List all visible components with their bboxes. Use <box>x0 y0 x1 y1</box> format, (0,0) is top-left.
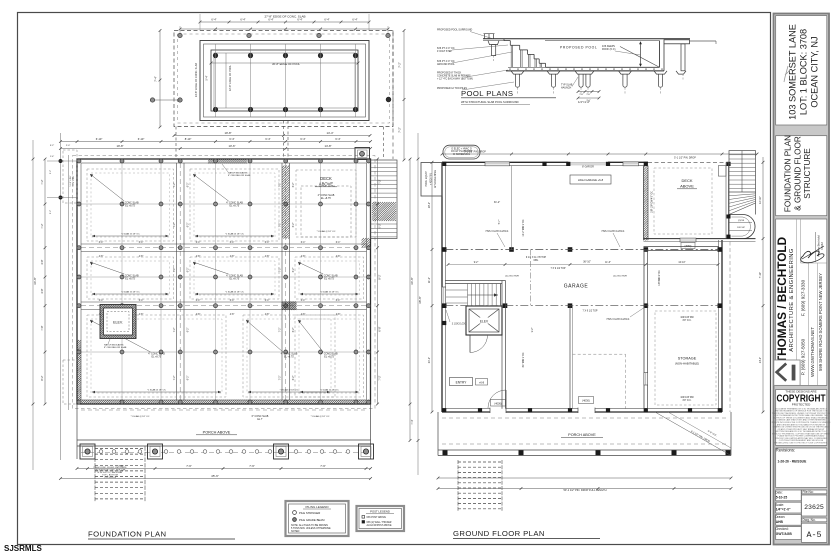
svg-text:23625: 23625 <box>804 504 824 511</box>
svg-text:6'-2": 6'-2" <box>188 268 190 273</box>
svg-text:6'-2": 6'-2" <box>378 223 382 228</box>
svg-text:DBL: DBL <box>534 259 539 262</box>
svg-text:6'-4": 6'-4" <box>324 18 329 22</box>
svg-text:5'-7": 5'-7" <box>499 220 501 225</box>
svg-text:7'-2": 7'-2" <box>280 183 282 188</box>
svg-text:6'-4": 6'-4" <box>99 300 104 302</box>
svg-text:6'-4": 6'-4" <box>301 300 306 302</box>
svg-text:1/4"=1'-0": 1/4"=1'-0" <box>776 508 791 512</box>
svg-text:9'-2": 9'-2" <box>532 328 534 333</box>
svg-text:*1 SLAB @ 18" OC: *1 SLAB @ 18" OC <box>121 233 140 236</box>
svg-text:1-26-26 - REISSUE: 1-26-26 - REISSUE <box>778 460 808 464</box>
svg-text:34'-8": 34'-8" <box>33 277 37 285</box>
svg-text:6X6 POST ABOVE: 6X6 POST ABOVE <box>367 516 387 519</box>
svg-text:6'-4": 6'-4" <box>240 18 245 22</box>
svg-text:EL.7': EL.7' <box>257 418 263 421</box>
svg-text:9'-2": 9'-2" <box>474 262 479 264</box>
svg-text:6X6 (2) WALL THICKER: 6X6 (2) WALL THICKER <box>367 521 392 524</box>
svg-text:1'-0": 1'-0" <box>586 94 591 96</box>
svg-text:6'-10": 6'-10" <box>96 137 103 141</box>
svg-text:7'-6": 7'-6" <box>320 464 326 468</box>
svg-text:7'-2": 7'-2" <box>174 328 176 333</box>
svg-text:EL +8.75': EL +8.75' <box>284 356 295 359</box>
svg-text:A-5: A-5 <box>806 530 821 540</box>
svg-text:PROPOSED POOL SURROUND: PROPOSED POOL SURROUND <box>437 29 473 32</box>
svg-text:STORAGE: STORAGE <box>678 357 697 361</box>
svg-text:EL +8.75': EL +8.75' <box>151 356 162 359</box>
svg-text:7'-2": 7'-2" <box>174 223 176 228</box>
svg-text:AHB: AHB <box>776 520 784 524</box>
svg-text:8'-10": 8'-10" <box>185 137 192 141</box>
svg-text:7'-2": 7'-2" <box>398 62 402 68</box>
svg-text:POOL PLANS: POOL PLANS <box>461 89 513 98</box>
svg-text:4'-8": 4'-8" <box>230 314 235 316</box>
svg-text:38'-8": 38'-8" <box>418 296 422 304</box>
svg-text:21'-2": 21'-2" <box>428 357 431 363</box>
svg-text:7'-10": 7'-10" <box>759 272 762 278</box>
svg-text:14'-8": 14'-8" <box>324 144 331 148</box>
svg-text:7'-4": 7'-4" <box>154 76 158 82</box>
svg-text:6'-4": 6'-4" <box>196 300 201 302</box>
svg-text:*1 SLAB @ 18" OC: *1 SLAB @ 18" OC <box>225 291 244 294</box>
svg-text:7'-2": 7'-2" <box>378 179 382 184</box>
svg-text:6'-2": 6'-2" <box>293 223 295 228</box>
svg-text:6'-2": 6'-2" <box>188 183 190 188</box>
svg-text:HSS 3 1/2X3 1/2X1/4: HSS 3 1/2X3 1/2X1/4 <box>486 230 509 233</box>
svg-text:6'-10": 6'-10" <box>138 137 145 141</box>
svg-text:7'-2": 7'-2" <box>174 376 176 381</box>
svg-text:PORCH ABOVE: PORCH ABOVE <box>568 433 596 437</box>
svg-text:6'-4": 6'-4" <box>211 18 216 22</box>
svg-text:10R 10P DW: 10R 10P DW <box>680 317 694 319</box>
svg-text:17642: 17642 <box>820 242 824 250</box>
svg-text:12'-2" MIN 9' OC: 12'-2" MIN 9' OC <box>523 219 525 236</box>
svg-text:6'-4": 6'-4" <box>265 300 270 302</box>
svg-text:*1 SLAB @ 18" OC: *1 SLAB @ 18" OC <box>225 233 244 236</box>
svg-text:31'-2": 31'-2" <box>494 201 500 204</box>
svg-text:*1 SLAB @ 18" OC: *1 SLAB @ 18" OC <box>311 415 330 418</box>
svg-text:45'-6": 45'-6" <box>211 474 219 478</box>
svg-text:6'-4": 6'-4" <box>297 18 302 22</box>
svg-text:ABOVE: ABOVE <box>680 184 694 189</box>
svg-text:DECK: DECK <box>320 176 332 181</box>
svg-text:POOL EQUIP: POOL EQUIP <box>425 171 428 187</box>
svg-text:EL +8.75': EL +8.75' <box>324 278 335 281</box>
svg-text:7'-2": 7'-2" <box>174 268 176 273</box>
svg-text:7'-6": 7'-6" <box>118 464 124 468</box>
svg-text:7'-2": 7'-2" <box>398 127 402 133</box>
svg-text:6'-4": 6'-4" <box>99 242 104 244</box>
svg-text:(NON-HABITABLE): (NON-HABITABLE) <box>675 362 699 366</box>
svg-text:6'-2": 6'-2" <box>293 183 295 188</box>
svg-text:EL +8.75': EL +8.75' <box>125 205 136 208</box>
svg-text:EL +8.75': EL +8.75' <box>229 278 240 281</box>
svg-text:8' GAR DR: 8' GAR DR <box>582 166 594 169</box>
svg-text:6'-4": 6'-4" <box>301 242 306 244</box>
svg-text:18'-2": 18'-2" <box>428 202 431 208</box>
svg-text:NOTED: NOTED <box>291 530 300 533</box>
svg-text:*1 SLAB @ 18" OC: *1 SLAB @ 18" OC <box>320 389 339 392</box>
svg-text:11'-6": 11'-6" <box>605 262 611 264</box>
svg-text:Drawn:: Drawn: <box>775 515 785 519</box>
svg-text:6'-2": 6'-2" <box>188 328 190 333</box>
svg-text:F. (609) 927-3330: F. (609) 927-3330 <box>801 279 806 316</box>
svg-text:1'-4": 1'-4" <box>50 156 55 158</box>
svg-text:599 SHORE ROAD SOMERS POINT: 599 SHORE ROAD SOMERS POINT NEW JERSEY <box>818 273 823 371</box>
svg-text:6'-4": 6'-4" <box>265 242 270 244</box>
svg-text:7 X 9 1/2 TOP: 7 X 9 1/2 TOP <box>582 310 597 313</box>
svg-text:1'-6": 1'-6" <box>579 94 584 96</box>
svg-text:Scale:: Scale: <box>775 503 784 507</box>
svg-text:*1 SLAB @ 18" OC: *1 SLAB @ 18" OC <box>131 415 150 418</box>
svg-text:6'-4": 6'-4" <box>352 18 357 22</box>
svg-text:PILE STRINGER: PILE STRINGER <box>299 511 320 515</box>
svg-text:*1 SLAB @ 18" OC: *1 SLAB @ 18" OC <box>317 230 336 233</box>
svg-text:6'-2": 6'-2" <box>293 268 295 273</box>
svg-text:Checked:: Checked: <box>775 527 789 531</box>
svg-text:PROPOSED POOL: PROPOSED POOL <box>560 46 597 50</box>
svg-text:AROUND POOL: AROUND POOL <box>437 63 455 66</box>
svg-text:6'-4": 6'-4" <box>336 242 341 244</box>
svg-text:6'-4": 6'-4" <box>139 242 144 244</box>
svg-text:& GROUND FLOOR: & GROUND FLOOR <box>794 136 803 211</box>
svg-text:6'-4": 6'-4" <box>336 300 341 302</box>
svg-text:8" CMU BELOW SLAB: 8" CMU BELOW SLAB <box>104 346 127 349</box>
svg-text:*1 SLAB @ 18" OC: *1 SLAB @ 18" OC <box>121 291 140 294</box>
svg-text:36'-8" EDGE OF POOL: 36'-8" EDGE OF POOL <box>272 62 300 66</box>
svg-text:5'-4": 5'-4" <box>206 75 209 80</box>
svg-text:3 1/2" 4 PLY: 3 1/2" 4 PLY <box>73 175 75 187</box>
svg-text:LOT: 1 BLOCK: 3708: LOT: 1 BLOCK: 3708 <box>798 29 808 115</box>
svg-text:PORCH ABOVE: PORCH ABOVE <box>203 431 231 435</box>
svg-text:4'9" O.C.: 4'9" O.C. <box>682 400 692 402</box>
svg-text:6'-4": 6'-4" <box>335 137 340 141</box>
svg-text:DECK: DECK <box>681 178 692 183</box>
svg-text:6'-2": 6'-2" <box>293 376 295 381</box>
svg-text:6'-4": 6'-4" <box>265 137 270 141</box>
svg-text:THOMAS / BECHTOLD: THOMAS / BECHTOLD <box>775 236 789 363</box>
svg-text:3'-2": 3'-2" <box>50 145 55 147</box>
svg-text:6'-4": 6'-4" <box>139 300 144 302</box>
svg-text:14'-4": 14'-4" <box>326 131 333 135</box>
svg-text:ELEV.: ELEV. <box>113 321 123 325</box>
svg-text:7'-2": 7'-2" <box>280 223 282 228</box>
svg-text:PILE GRADE BEAM: PILE GRADE BEAM <box>299 518 325 522</box>
svg-text:Dwg. No.: Dwg. No. <box>803 518 816 522</box>
svg-text:6'-2": 6'-2" <box>188 376 190 381</box>
svg-text:3'-2": 3'-2" <box>50 210 52 215</box>
svg-text:7'-6": 7'-6" <box>186 464 192 468</box>
svg-text:*1 SLAB @ 18" OC: *1 SLAB @ 18" OC <box>280 389 299 392</box>
svg-text:STRUCTURE: STRUCTURE <box>803 148 812 199</box>
svg-text:HIGH GARAGE +6-8: HIGH GARAGE +6-8 <box>578 178 604 182</box>
svg-text:10'-10": 10'-10" <box>678 262 685 264</box>
svg-text:OCEAN CITY, NJ: OCEAN CITY, NJ <box>809 36 819 107</box>
svg-text:(2) 2X10 HDR: (2) 2X10 HDR <box>505 276 519 278</box>
svg-text:14'-2": 14'-2" <box>759 357 762 363</box>
svg-text:PROTECTED: PROTECTED <box>792 402 811 406</box>
svg-text:7'-2": 7'-2" <box>378 375 382 380</box>
svg-text:+6-8: +6-8 <box>479 380 485 384</box>
svg-text:GROUND FLOOR PLAN: GROUND FLOOR PLAN <box>453 529 545 538</box>
svg-text:14'-8" EDGE OF CONC. SLAB: 14'-8" EDGE OF CONC. SLAB <box>195 63 198 97</box>
svg-text:4'-8": 4'-8" <box>40 288 44 293</box>
svg-text:HSS 3 1/2X3 1/2X1/4: HSS 3 1/2X3 1/2X1/4 <box>602 230 625 233</box>
svg-text:6'-4": 6'-4" <box>196 242 201 244</box>
svg-text:19'-8": 19'-8" <box>224 131 231 135</box>
svg-text:7'-8": 7'-8" <box>40 325 44 330</box>
svg-text:7'-2": 7'-2" <box>40 179 44 184</box>
svg-text:11'-2": 11'-2" <box>428 277 431 283</box>
svg-text:10R 10P DW: 10R 10P DW <box>680 397 694 399</box>
svg-text:W SCREENING: W SCREENING <box>434 170 437 188</box>
svg-text:6'-4": 6'-4" <box>230 300 235 302</box>
svg-text:6'-4": 6'-4" <box>300 137 305 141</box>
svg-text:PILING LEGEND: PILING LEGEND <box>305 505 329 509</box>
svg-text:(4036): (4036) <box>494 402 501 405</box>
svg-text:HAUNCH: HAUNCH <box>561 87 572 90</box>
svg-text:(2) 2X10 HDR: (2) 2X10 HDR <box>613 276 627 278</box>
svg-text:(4030): (4030) <box>582 399 590 403</box>
svg-text:+ 12" 4"C EACH WAY (BOTTOM): + 12" 4"C EACH WAY (BOTTOM) <box>437 78 473 81</box>
svg-text:19'-8": 19'-8" <box>116 144 123 148</box>
svg-text:ENTRY: ENTRY <box>456 380 468 384</box>
svg-text:P. (609) 927-5050: P. (609) 927-5050 <box>801 338 806 375</box>
svg-text:2'-0": 2'-0" <box>66 145 71 147</box>
svg-text:8'-2": 8'-2" <box>40 375 44 380</box>
svg-text:ALIGN W/POST ABOVE: ALIGN W/POST ABOVE <box>367 524 392 527</box>
svg-text:10R 10P: 10R 10P <box>737 227 746 229</box>
svg-text:6'-4": 6'-4" <box>229 137 234 141</box>
svg-text:7 X 9 1/2 TOP: 7 X 9 1/2 TOP <box>550 267 565 270</box>
svg-text:10R 10P DW 4'9" OC: 10R 10P DW 4'9" OC <box>652 191 654 213</box>
svg-text:6'-2": 6'-2" <box>188 223 190 228</box>
svg-text:GARAGE: GARAGE <box>564 284 589 290</box>
svg-text:ABOVE: ABOVE <box>319 182 334 187</box>
svg-text:5-10-25: 5-10-25 <box>776 495 788 499</box>
svg-text:12'-8" EDGE OF POOL: 12'-8" EDGE OF POOL <box>229 64 232 91</box>
svg-text:4'-8": 4'-8" <box>40 259 44 264</box>
svg-text:4'9" O.C.: 4'9" O.C. <box>682 320 692 322</box>
svg-text:14'8 MIN 9' OC: 14'8 MIN 9' OC <box>659 270 661 286</box>
svg-text:8'-2": 8'-2" <box>378 274 382 279</box>
svg-text:12'-10": 12'-10" <box>759 196 762 204</box>
svg-text:EL +8.75': EL +8.75' <box>229 205 240 208</box>
svg-text:7'-2": 7'-2" <box>40 223 44 228</box>
svg-text:POST LEGEND: POST LEGEND <box>370 510 390 514</box>
svg-text:6'-4": 6'-4" <box>268 18 273 22</box>
svg-text:FOUNDATION PLAN: FOUNDATION PLAN <box>88 530 166 539</box>
svg-text:ARCHITECTURE & ENGINEERING: ARCHITECTURE & ENGINEERING <box>789 248 795 352</box>
svg-text:Date:: Date: <box>775 491 783 495</box>
svg-text:34'-8": 34'-8" <box>410 277 414 285</box>
svg-text:10'-6": 10'-6" <box>228 144 235 148</box>
svg-text:7'-2": 7'-2" <box>174 183 176 188</box>
svg-text:PROSECUTED. USE TO PROTECT YO: PROSECUTED. USE TO PROTECT YOUR COPYRIGH… <box>774 443 828 445</box>
svg-text:2'-2": 2'-2" <box>50 170 52 175</box>
svg-text:EL +8.75': EL +8.75' <box>321 197 332 200</box>
svg-text:7'-2": 7'-2" <box>280 268 282 273</box>
svg-text:ELEV: ELEV <box>480 319 489 323</box>
svg-text:8" CMU BELOW SLAB: 8" CMU BELOW SLAB <box>228 174 251 177</box>
svg-text:Revisions:: Revisions: <box>776 448 795 453</box>
svg-text:EL +8.75': EL +8.75' <box>125 278 136 281</box>
svg-text:*1 SLAB @ 18" OC: *1 SLAB @ 18" OC <box>147 389 166 392</box>
svg-text:GWT/AGB: GWT/AGB <box>776 532 793 536</box>
svg-text:1/4"=1'-0": 1/4"=1'-0" <box>578 100 590 104</box>
svg-text:WITH STRUCTURAL SLAB POOL SURR: WITH STRUCTURAL SLAB POOL SURROUND <box>461 100 519 104</box>
svg-text:6'-4": 6'-4" <box>230 242 235 244</box>
svg-text:SJSRMLS: SJSRMLS <box>4 544 42 553</box>
svg-text:HSS 3 1/2X3 1/2X1/4: HSS 3 1/2X3 1/2X1/4 <box>607 318 630 321</box>
svg-text:WWW.GWTHOMAS.NET: WWW.GWTHOMAS.NET <box>810 327 815 377</box>
svg-text:*1 SLAB @ 18" OC: *1 SLAB @ 18" OC <box>320 291 339 294</box>
svg-text:5 1/2" 4 PLY: 5 1/2" 4 PLY <box>70 175 72 187</box>
svg-text:5'-1 1/2" PIN. DROP: 5'-1 1/2" PIN. DROP <box>674 157 696 160</box>
svg-text:7'-4": 7'-4" <box>410 419 414 424</box>
svg-text:6'-8": 6'-8" <box>378 326 382 331</box>
svg-text:6'-2": 6'-2" <box>293 328 295 333</box>
svg-text:7'-2": 7'-2" <box>280 328 282 333</box>
svg-text:EL +8.75': EL +8.75' <box>324 356 335 359</box>
svg-text:4' DIGT STEP: 4' DIGT STEP <box>437 50 452 53</box>
svg-text:9'-1 1/2" PIN. DROP: 9'-1 1/2" PIN. DROP <box>464 151 486 154</box>
svg-text:103 SOMERSET LANE: 103 SOMERSET LANE <box>787 24 797 120</box>
svg-text:File No:: File No: <box>803 490 814 494</box>
svg-text:7'-6": 7'-6" <box>249 464 255 468</box>
svg-text:FOUNDATION PLAN: FOUNDATION PLAN <box>784 135 793 212</box>
svg-text:36'-10": 36'-10" <box>583 261 591 264</box>
svg-text:7'-2": 7'-2" <box>280 376 282 381</box>
svg-text:ROOF (O.C): ROOF (O.C) <box>602 48 616 51</box>
svg-text:(2)2X8: (2)2X8 <box>738 220 745 222</box>
svg-text:4'9" MIN 9' OC: 4'9" MIN 9' OC <box>523 352 525 367</box>
